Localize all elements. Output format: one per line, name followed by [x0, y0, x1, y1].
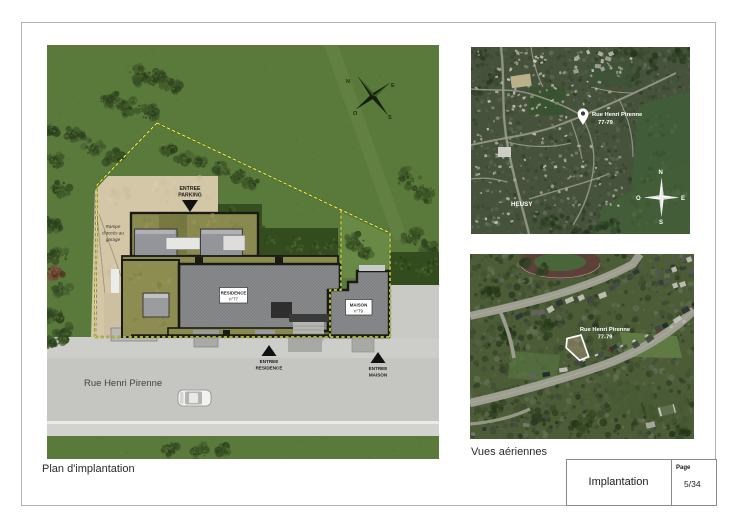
svg-text:d'accès au: d'accès au	[102, 231, 124, 236]
svg-text:n°79: n°79	[354, 309, 363, 314]
svg-text:Rue Henri Pirenne: Rue Henri Pirenne	[84, 378, 162, 389]
svg-text:garage: garage	[106, 237, 121, 242]
svg-text:O: O	[636, 196, 641, 202]
svg-text:S: S	[659, 220, 663, 226]
svg-text:77-79: 77-79	[598, 120, 614, 126]
svg-text:n°77: n°77	[229, 297, 238, 302]
svg-text:N: N	[659, 170, 663, 176]
svg-text:MAISON: MAISON	[369, 373, 388, 378]
svg-text:E: E	[391, 83, 395, 89]
svg-text:ENTREE: ENTREE	[369, 366, 388, 371]
svg-text:N: N	[346, 79, 350, 85]
svg-text:PARKING: PARKING	[178, 193, 202, 199]
svg-text:S: S	[388, 115, 392, 121]
svg-text:Rue Henri Pirenne: Rue Henri Pirenne	[592, 112, 643, 118]
svg-text:RESIDENCE: RESIDENCE	[221, 291, 247, 296]
svg-text:O: O	[353, 111, 358, 117]
svg-text:MAISON: MAISON	[350, 303, 368, 308]
svg-text:RESIDENCE: RESIDENCE	[256, 366, 283, 371]
svg-text:HEUSY: HEUSY	[511, 201, 533, 208]
svg-text:ENTREE: ENTREE	[179, 186, 201, 192]
svg-text:ENTREE: ENTREE	[260, 359, 279, 364]
svg-text:Rampe: Rampe	[106, 224, 121, 229]
svg-text:E: E	[681, 196, 685, 202]
